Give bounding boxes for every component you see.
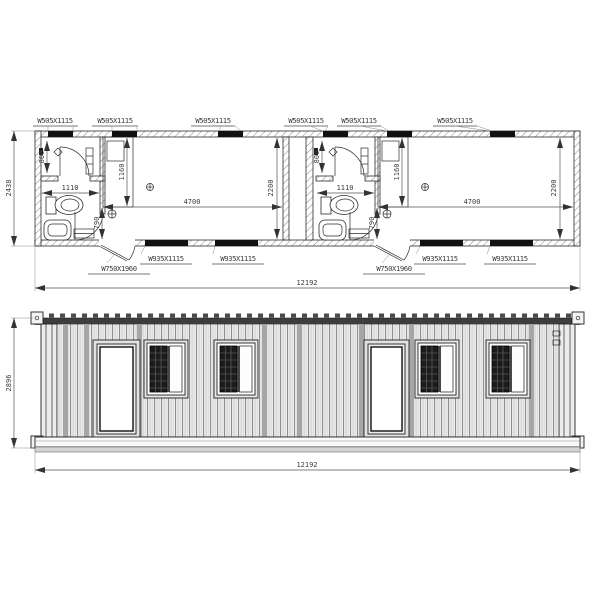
dim-2200: 2200 — [550, 180, 558, 197]
dim-12192-elevation: 12192 — [296, 461, 317, 469]
door-label: W750X1960 — [101, 264, 136, 273]
dim-2896: 2896 — [5, 375, 13, 392]
elevation-door-1 — [93, 340, 140, 438]
dim-4700: 4700 — [184, 198, 201, 206]
dim-800: 800 — [313, 151, 321, 164]
dim-800: 800 — [38, 151, 46, 164]
window-label: W935X1115 — [148, 254, 183, 263]
window-label: W505X1115 — [288, 116, 323, 125]
top-window-labels: W505X1115 W505X1115 W505X1115 W505X1115 … — [33, 116, 492, 131]
door-label: W750X1960 — [376, 264, 411, 273]
entrance-door-2 — [374, 240, 410, 262]
elevation-window — [144, 340, 188, 398]
bottom-window-labels: W935X1115 W935X1115 W935X1115 W935X1115 — [140, 246, 536, 264]
dim-1160: 1160 — [118, 164, 126, 181]
window-label: W935X1115 — [422, 254, 457, 263]
elevation-window — [486, 340, 530, 398]
window-label: W505X1115 — [195, 116, 230, 125]
elevation-window — [214, 340, 258, 398]
plan-overall-dims: 2438 12192 — [5, 131, 580, 291]
dim-1110: 1110 — [62, 184, 79, 192]
unit-2-dims: 800 1110 1160 790 4700 2200 — [313, 138, 573, 239]
entrance-door-1 — [99, 240, 135, 262]
elevation-window — [415, 340, 459, 398]
dim-1110: 1110 — [337, 184, 354, 192]
floor-plan: W505X1115 W505X1115 W505X1115 W505X1115 … — [5, 116, 580, 291]
dim-12192-plan: 12192 — [296, 279, 317, 287]
dim-790: 790 — [93, 217, 101, 230]
dim-4700: 4700 — [464, 198, 481, 206]
dim-2200: 2200 — [267, 180, 275, 197]
front-elevation: 2896 12192 — [5, 312, 584, 473]
door-labels: W750X1960 W750X1960 — [88, 255, 425, 274]
window-label: W935X1115 — [492, 254, 527, 263]
dim-790: 790 — [368, 217, 376, 230]
unit-1-dims: 800 1110 1160 790 4700 2200 — [38, 138, 282, 239]
window-label: W935X1115 — [220, 254, 255, 263]
plan-windows — [48, 131, 533, 246]
cad-drawing: W505X1115 W505X1115 W505X1115 W505X1115 … — [0, 0, 600, 600]
drawing-sheet: W505X1115 W505X1115 W505X1115 W505X1115 … — [0, 0, 600, 600]
window-label: W505X1115 — [437, 116, 472, 125]
dim-1160: 1160 — [393, 164, 401, 181]
window-label: W505X1115 — [97, 116, 132, 125]
dim-2438: 2438 — [5, 180, 13, 197]
window-label: W505X1115 — [37, 116, 72, 125]
window-label: W505X1115 — [341, 116, 376, 125]
elevation-door-2 — [364, 340, 409, 438]
